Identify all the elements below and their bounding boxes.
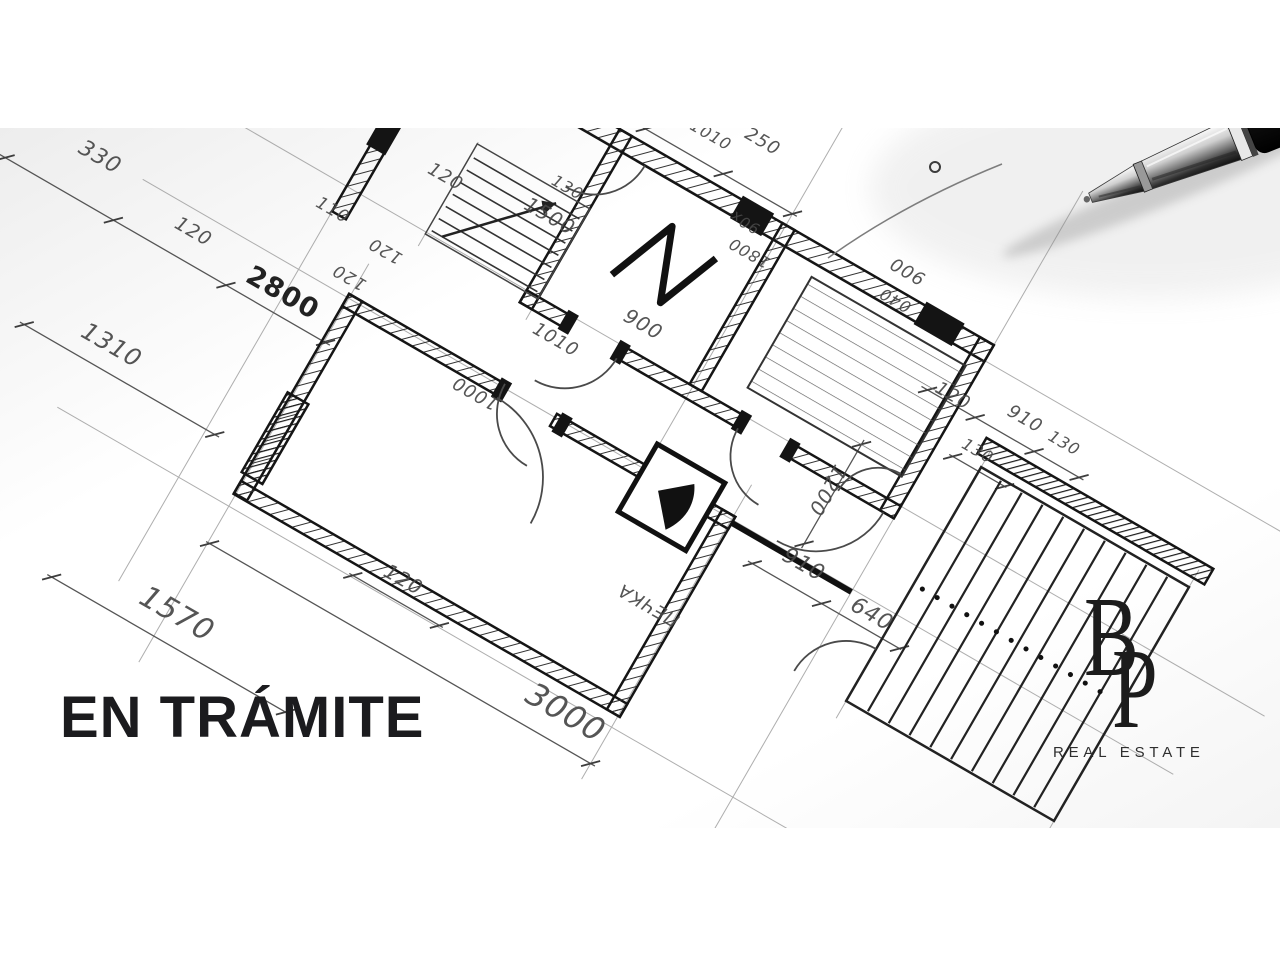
listing-image: 3301202800131011012012012015001301010250… [0,0,1280,960]
status-overlay-text: EN TRÁMITE [60,684,424,751]
brand-wordmark: REAL ESTATE [1053,744,1205,761]
monogram-letter-p: P [1112,632,1158,746]
